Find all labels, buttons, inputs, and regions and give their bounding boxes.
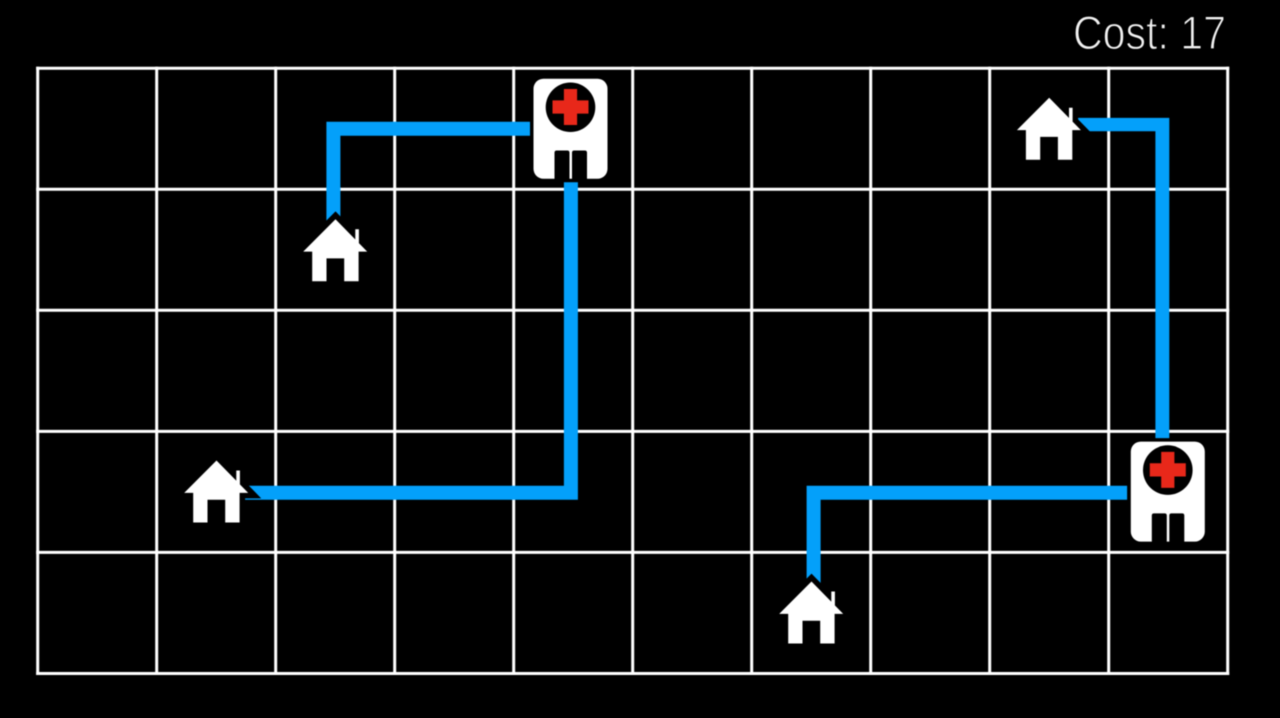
- svg-text:Cost: 17: Cost: 17: [1073, 7, 1226, 60]
